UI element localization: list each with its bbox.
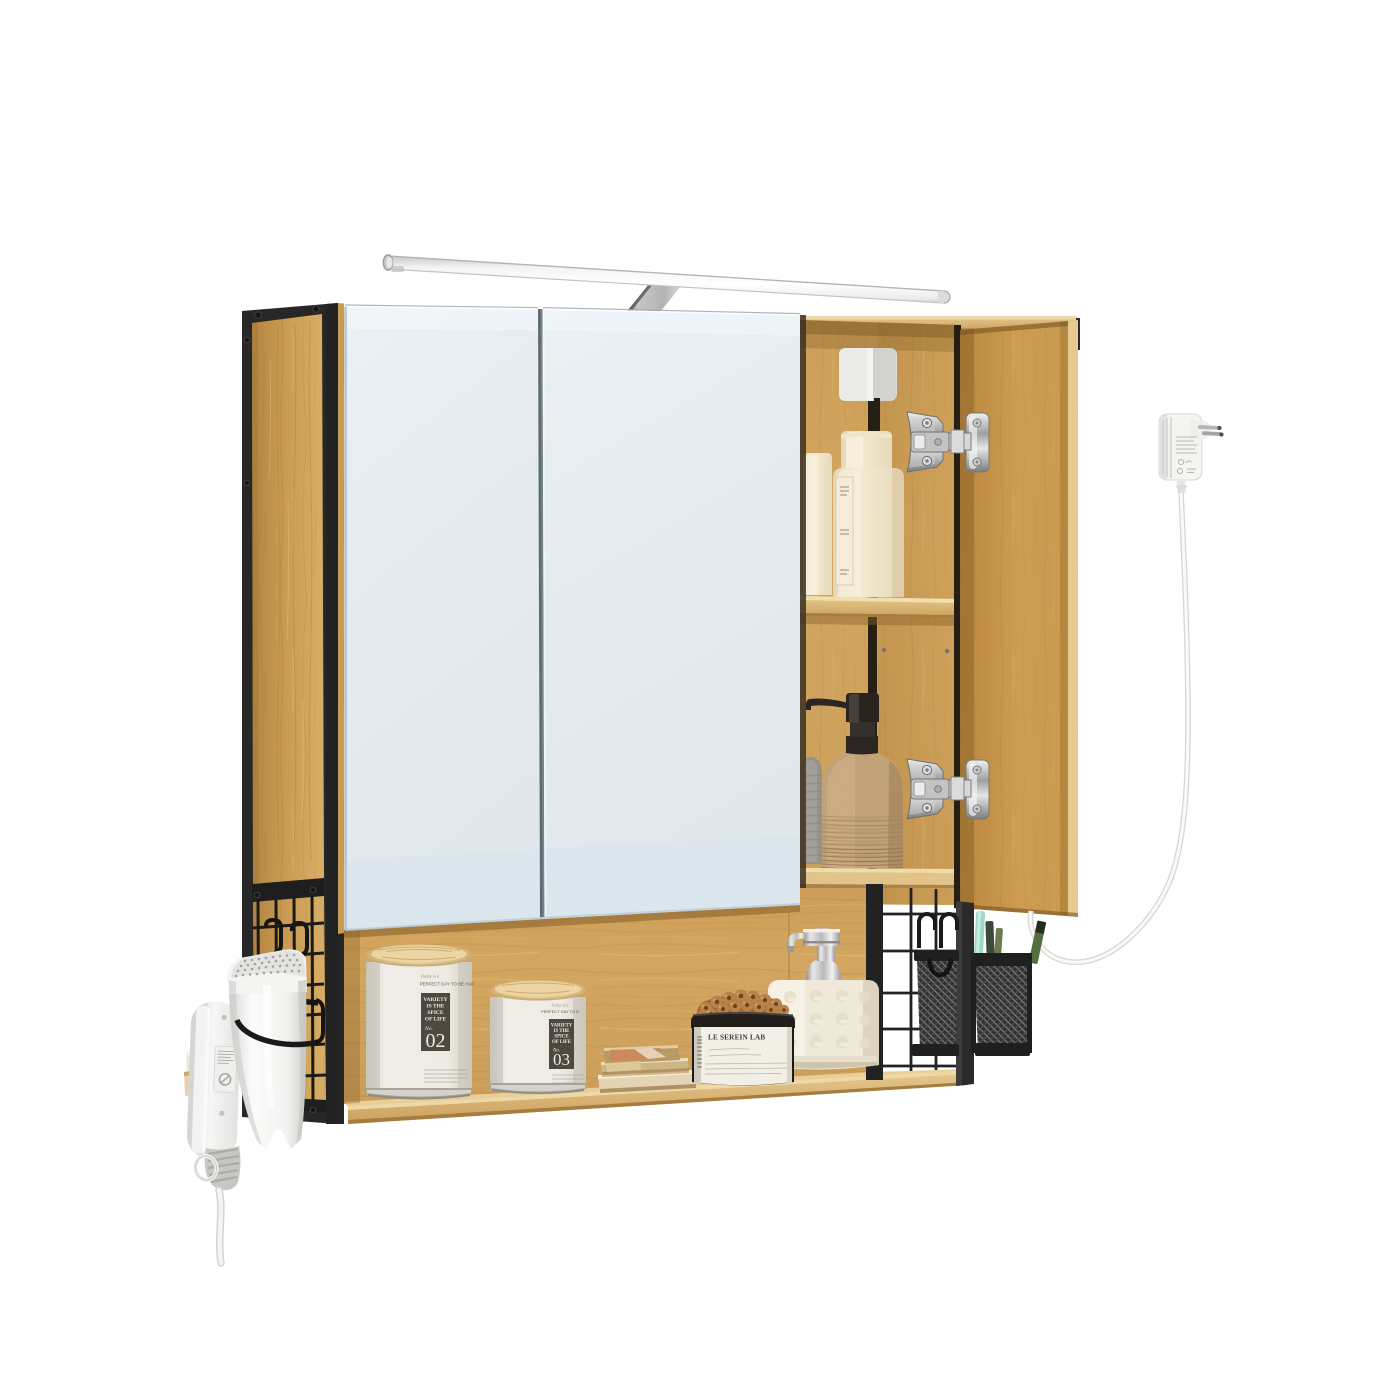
svg-text:Today is a: Today is a [421,974,440,979]
svg-text:PERFECT DAY TO BE HAP: PERFECT DAY TO BE HAP [420,982,475,987]
svg-text:VARIETY: VARIETY [551,1024,573,1029]
svg-text:OF LIFE: OF LIFE [552,1040,571,1045]
svg-text:SPICE: SPICE [554,1035,568,1040]
svg-text:Today is a: Today is a [551,1003,568,1008]
svg-text:PERFECT DAY TO B: PERFECT DAY TO B [541,1009,579,1014]
svg-text:LE SEREIN LAB: LE SEREIN LAB [708,1034,765,1042]
svg-text:IS THE: IS THE [554,1029,570,1034]
svg-text:OF LIFE: OF LIFE [425,1017,447,1023]
svg-text:02: 02 [426,1030,446,1052]
svg-text:IS THE: IS THE [427,1004,445,1010]
svg-text:03: 03 [553,1050,570,1069]
svg-text:VARIETY: VARIETY [423,997,447,1003]
svg-text:SPICE: SPICE [428,1010,444,1016]
